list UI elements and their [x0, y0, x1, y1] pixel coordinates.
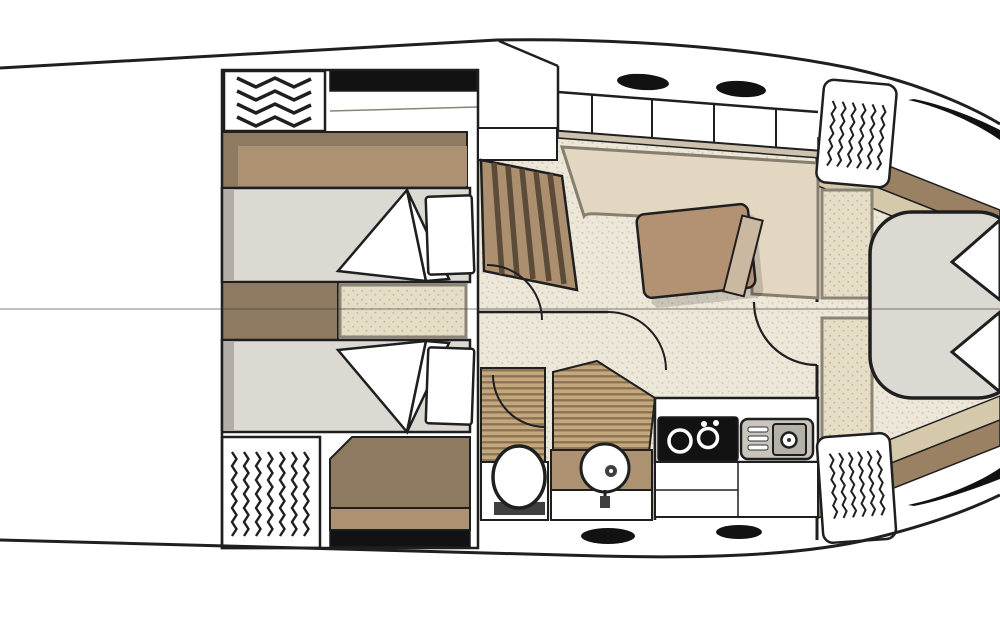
toilet: [493, 446, 545, 508]
drainboard-bar-1: [748, 427, 768, 432]
drainboard-bar-2: [748, 436, 768, 441]
head-faucet-base: [600, 496, 610, 508]
galley: [655, 398, 818, 520]
head-sink: [581, 444, 629, 492]
deck-hatch-oval-bottom-left: [581, 528, 635, 544]
head-sink-drain-dot: [609, 469, 613, 473]
settee-front-band: [330, 508, 470, 530]
head-bathroom: [481, 361, 655, 520]
pillow-lower: [426, 347, 475, 425]
window-bar-bottom: [330, 530, 470, 547]
companionway-locker: [478, 128, 557, 160]
window-bar-top: [330, 70, 477, 91]
berth-upper-shadow: [223, 189, 234, 281]
companionway-stairs: [481, 160, 577, 290]
headboard-inner: [238, 146, 467, 186]
bow-shelf-top: [822, 190, 872, 298]
floor-plan-canvas: [0, 0, 1000, 625]
berth-divider: [222, 282, 338, 340]
hatch-zigzag-box-bow-top: [816, 79, 898, 188]
stove-knob-2: [713, 420, 719, 426]
stove-knob-1: [701, 421, 707, 427]
pillow-upper: [426, 195, 475, 275]
berth-lower-shadow: [223, 341, 234, 431]
sink-drain-dot: [787, 438, 791, 442]
nightstand: [340, 285, 466, 337]
yacht-floor-plan: [0, 0, 1000, 625]
deck-hatch-oval-bottom-right: [716, 525, 762, 539]
drainboard-bar-3: [748, 445, 768, 450]
hatch-zigzag-box-bow-bottom: [816, 433, 896, 544]
settee: [330, 437, 470, 508]
